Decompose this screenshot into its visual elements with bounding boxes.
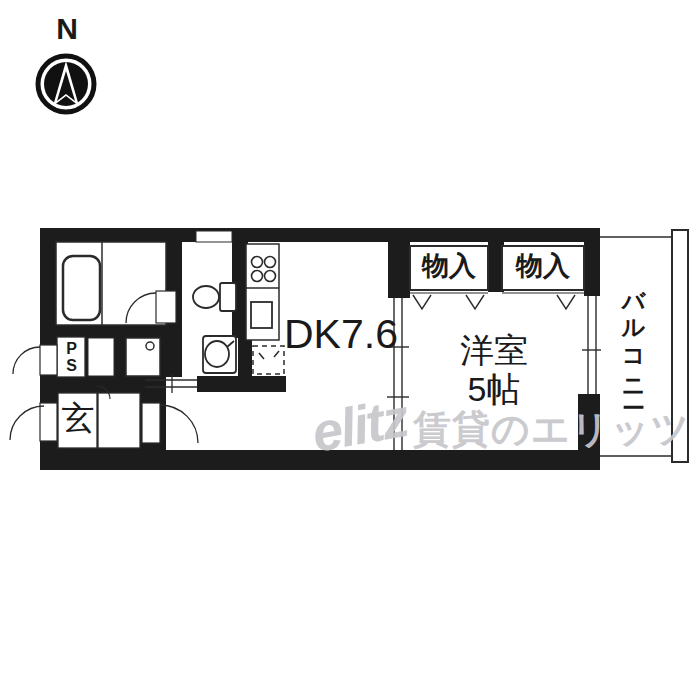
room-label-western-room: 洋室 5帖: [433, 331, 555, 409]
closet-door-marks: [413, 295, 575, 309]
compass-icon: [38, 56, 94, 112]
room-label-dk: DK7.6: [284, 314, 398, 355]
floorplan-image: N DK7.6 洋室 5帖 物入 物入 バルコニー 玄 P S elitz 賃貸…: [0, 0, 700, 700]
balcony-window: [582, 296, 601, 394]
entrance-step: [98, 393, 140, 448]
bathroom: [56, 242, 176, 325]
room-label-closet-left: 物入: [410, 253, 488, 280]
hall-opening: [88, 338, 114, 376]
room-label-pipe-space: P S: [59, 340, 84, 374]
balcony-railing: [672, 230, 688, 462]
toilet: [193, 283, 236, 311]
bathroom-door-leaf: [156, 291, 176, 323]
washing-machine-pan: [126, 338, 160, 376]
top-wall-window: [196, 231, 232, 242]
entrance-door: [10, 403, 57, 441]
bathtub: [63, 256, 100, 320]
ps-door: [13, 345, 57, 375]
room-label-entrance: 玄: [58, 401, 98, 434]
washbasin: [203, 336, 236, 373]
kitchen-counter: [246, 244, 279, 340]
refrigerator-space: [253, 346, 284, 374]
room-label-balcony: バルコニー: [622, 274, 645, 444]
room-label-closet-right: 物入: [504, 253, 582, 280]
kitchen-sink: [251, 302, 272, 328]
hall-dk-door: [142, 403, 198, 443]
compass-north-label: N: [50, 12, 84, 46]
